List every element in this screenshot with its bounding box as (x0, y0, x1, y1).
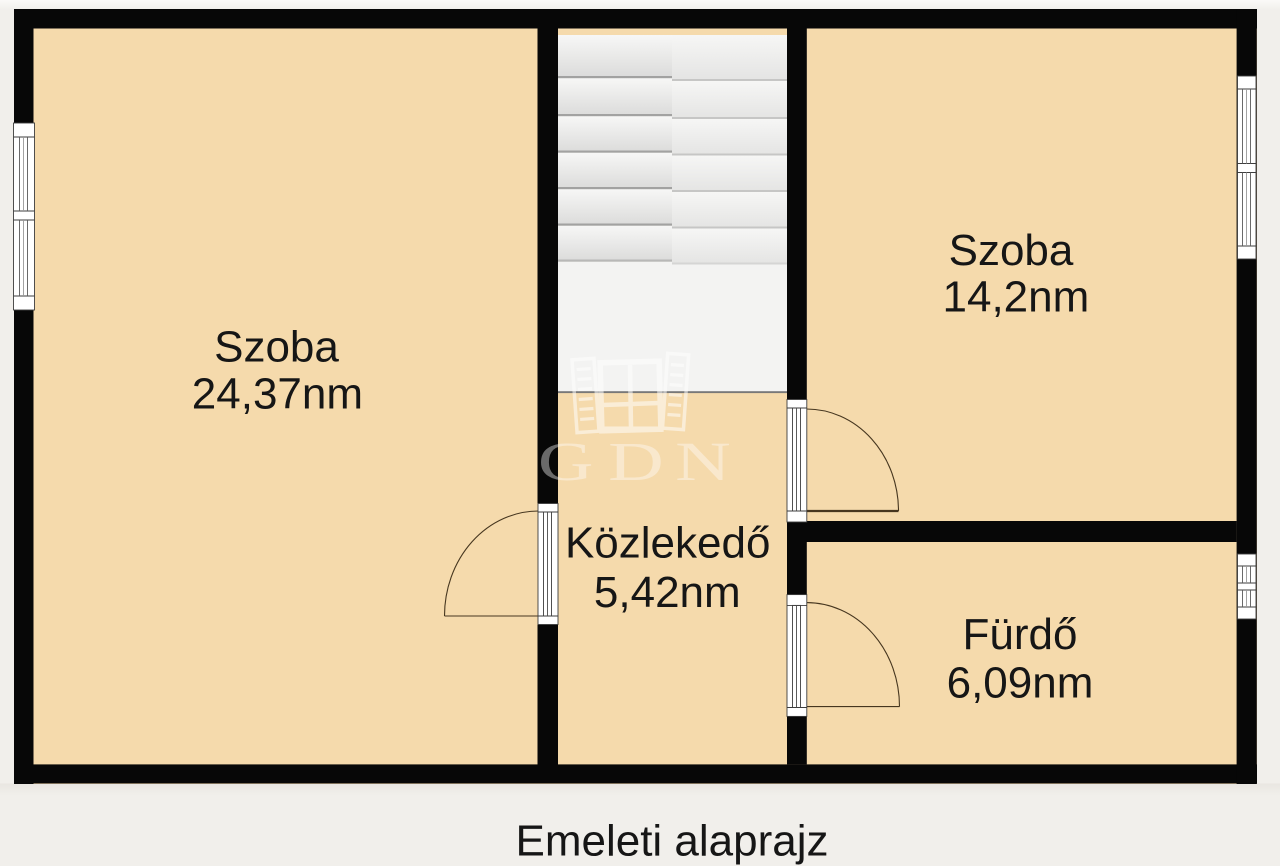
svg-text:D: D (608, 432, 664, 493)
svg-text:Közlekedő: Közlekedő (565, 519, 770, 568)
svg-text:Szoba: Szoba (214, 323, 339, 372)
svg-text:5,42nm: 5,42nm (594, 568, 741, 617)
svg-text:Emeleti alaprajz: Emeleti alaprajz (515, 817, 828, 866)
svg-text:G: G (538, 432, 594, 493)
svg-text:Szoba: Szoba (949, 226, 1074, 275)
svg-text:6,09nm: 6,09nm (947, 659, 1094, 708)
svg-text:N: N (675, 432, 731, 493)
svg-text:Fürdő: Fürdő (963, 610, 1078, 659)
svg-text:24,37nm: 24,37nm (192, 369, 363, 418)
svg-text:14,2nm: 14,2nm (943, 273, 1090, 322)
